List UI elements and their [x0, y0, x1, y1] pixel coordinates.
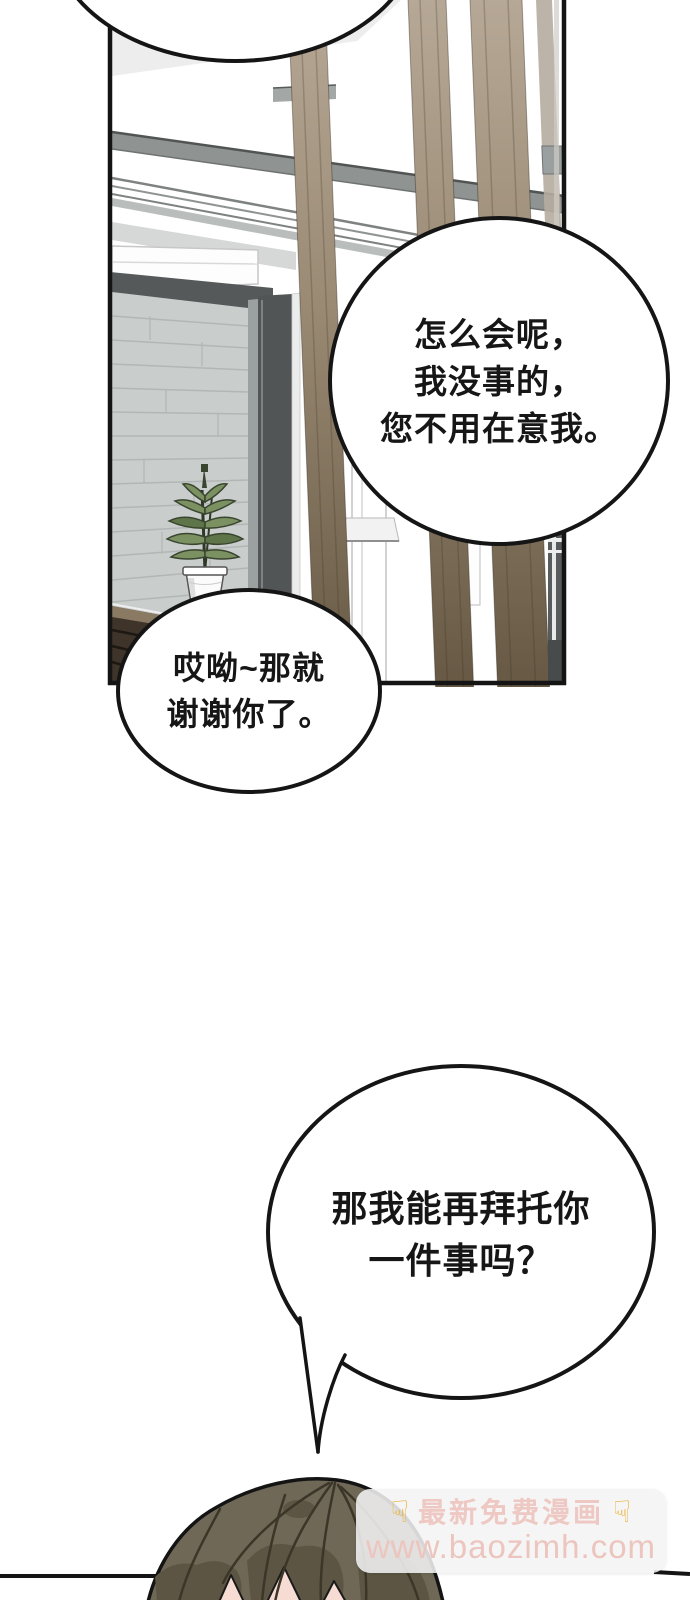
slat-bracket	[542, 146, 563, 174]
bubble-text-line: 哎呦~那就	[173, 645, 325, 691]
bubble-text-line: 我没事的，	[414, 358, 584, 405]
pointing-down-hand-icon: ☟	[391, 1497, 409, 1529]
pointing-down-hand-icon: ☟	[613, 1497, 631, 1529]
background-line-right	[654, 1570, 690, 1576]
speech-bubble-3-tail	[280, 1310, 360, 1460]
brick-wall	[112, 292, 248, 626]
bubble-text-line: 您不用在意我。	[380, 405, 618, 452]
speech-bubble-2: 哎呦~那就 谢谢你了。	[116, 588, 382, 794]
bubble-text-line: 谢谢你了。	[166, 691, 331, 737]
bubble-text-line: 怎么会呢，	[414, 311, 584, 358]
bubble-text-line: 那我能再拜托你	[331, 1183, 590, 1235]
watermark-url: www.baozimh.com	[366, 1529, 656, 1565]
watermark-title: 最新免费漫画	[418, 1497, 604, 1529]
comic-page: 怎么会呢， 我没事的， 您不用在意我。 哎呦~那就 谢谢你了。 那我能再拜托你 …	[0, 0, 690, 1600]
watermark-box: ☟ 最新免费漫画 ☟ www.baozimh.com	[356, 1489, 666, 1573]
watermark-row-1: ☟ 最新免费漫画 ☟	[391, 1497, 632, 1529]
speech-bubble-1: 怎么会呢， 我没事的， 您不用在意我。	[328, 216, 670, 546]
bubble-text-line: 一件事吗？	[368, 1235, 553, 1287]
